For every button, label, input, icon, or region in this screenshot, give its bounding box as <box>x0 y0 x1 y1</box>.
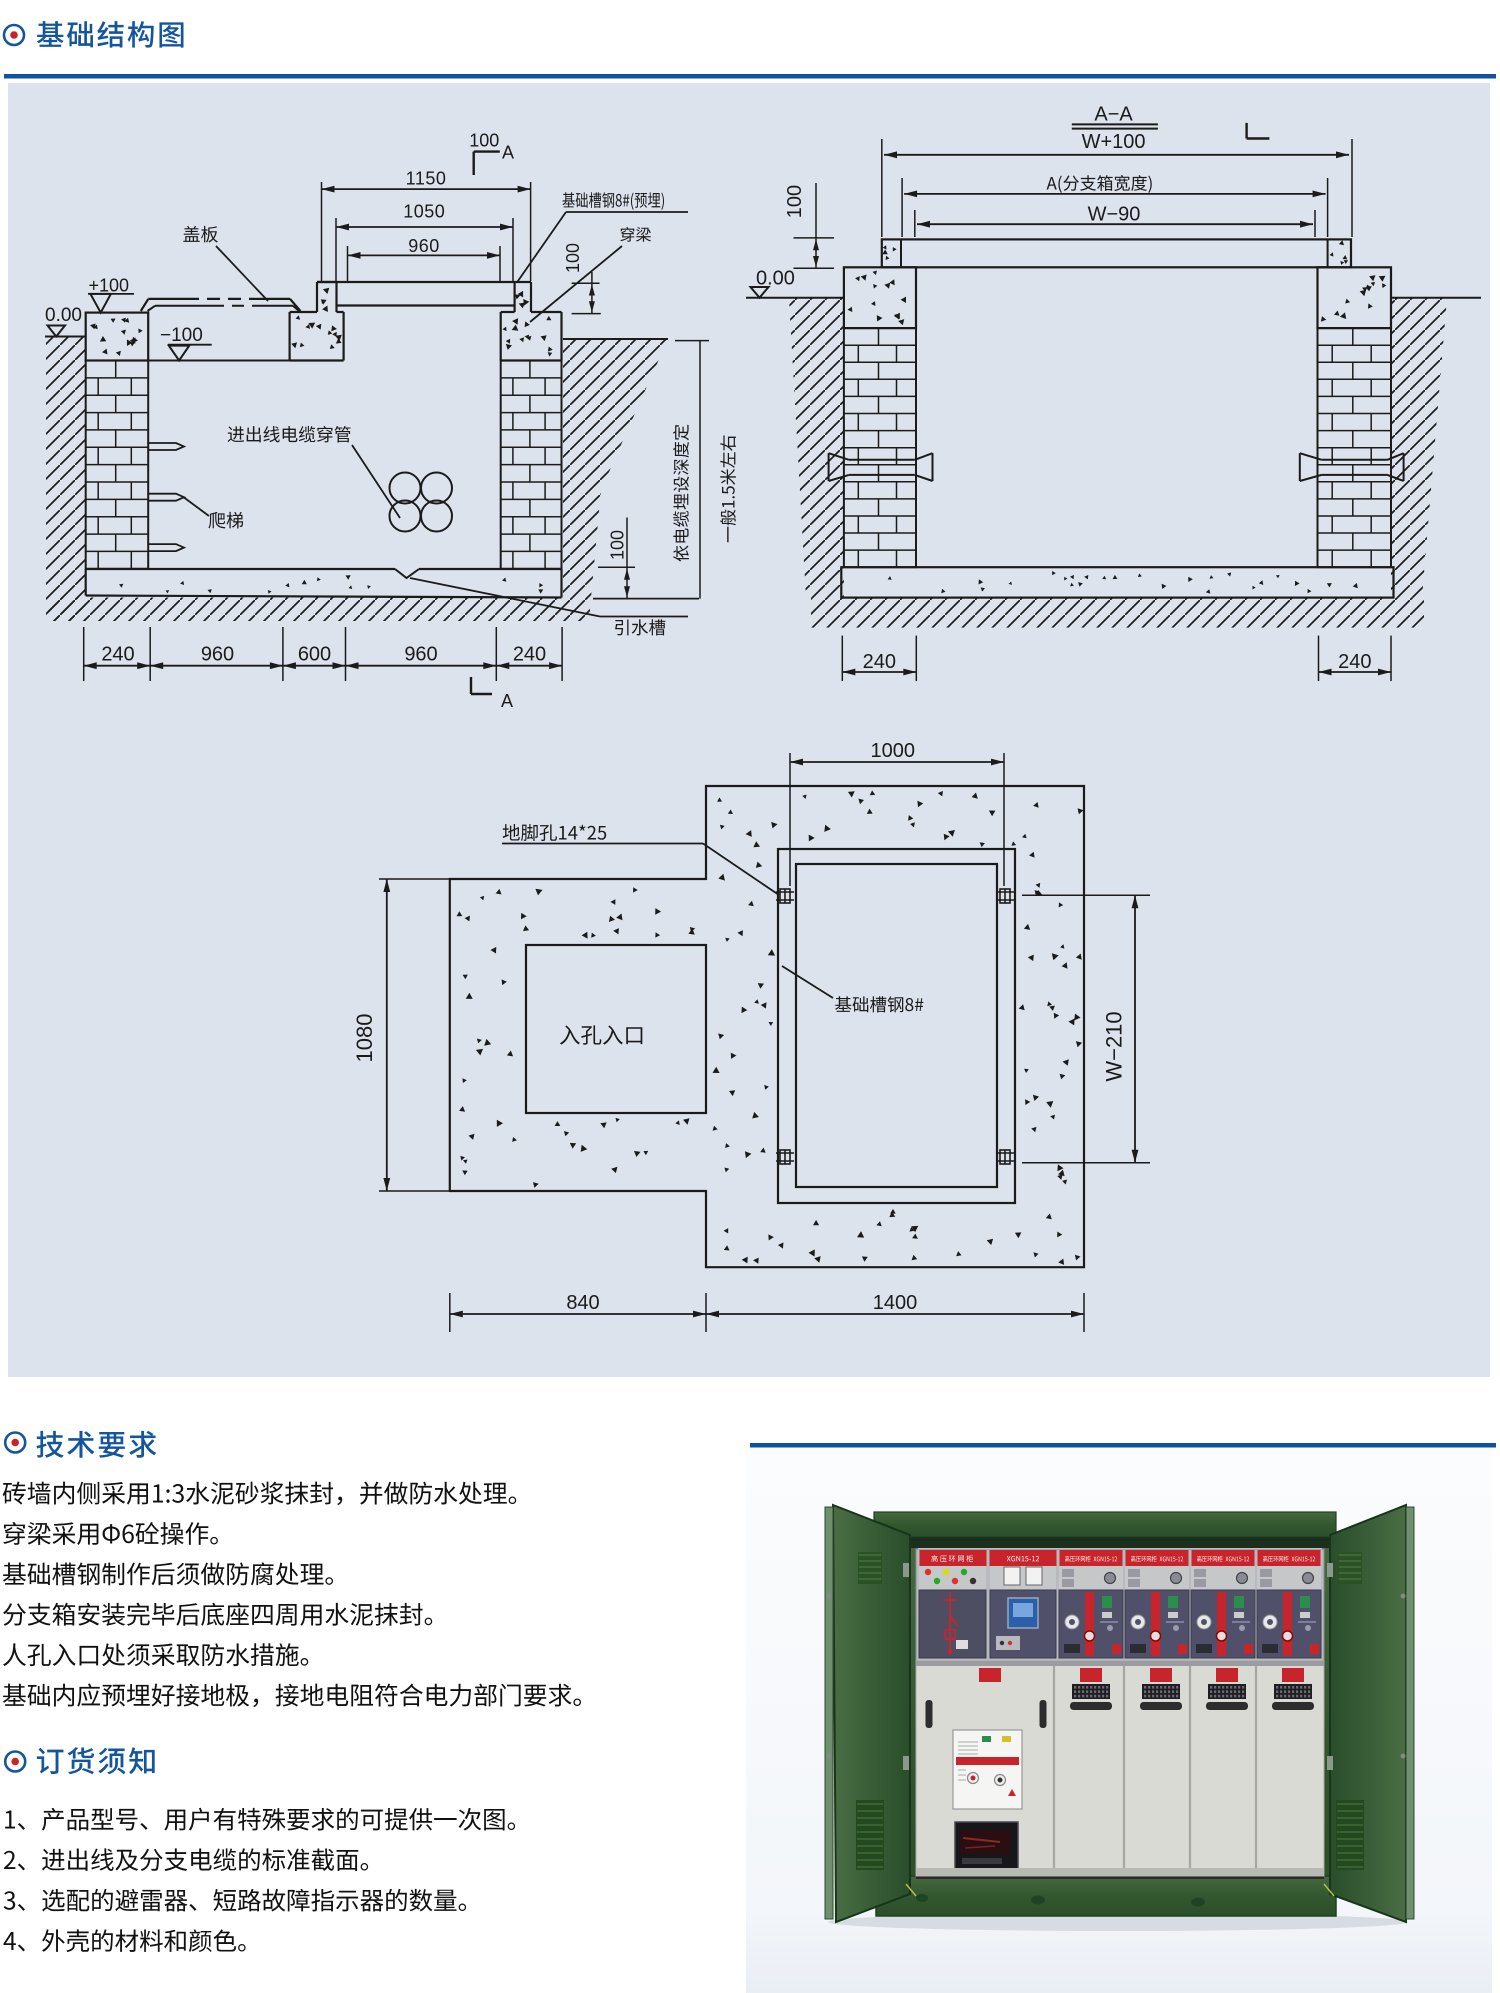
svg-text:960: 960 <box>404 643 437 665</box>
svg-text:100: 100 <box>563 243 583 273</box>
svg-text:W−210: W−210 <box>1102 1011 1127 1081</box>
svg-text:−100: −100 <box>160 325 203 346</box>
svg-text:1050: 1050 <box>403 202 445 222</box>
svg-text:240: 240 <box>1338 651 1371 673</box>
svg-text:1000: 1000 <box>871 740 916 762</box>
svg-text:1150: 1150 <box>406 169 447 189</box>
svg-text:240: 240 <box>863 651 896 673</box>
svg-text:100: 100 <box>784 185 806 218</box>
svg-text:A: A <box>502 143 514 163</box>
svg-text:0.00: 0.00 <box>45 305 82 326</box>
svg-text:W−90: W−90 <box>1088 204 1141 226</box>
svg-text:100: 100 <box>608 530 628 560</box>
svg-text:240: 240 <box>101 643 134 665</box>
svg-text:600: 600 <box>298 643 331 665</box>
svg-text:W+100: W+100 <box>1082 131 1146 153</box>
svg-text:240: 240 <box>513 643 546 665</box>
svg-text:+100: +100 <box>89 276 130 296</box>
svg-text:A−A: A−A <box>1094 103 1133 125</box>
svg-text:1400: 1400 <box>873 1292 918 1314</box>
svg-text:1080: 1080 <box>352 1014 377 1063</box>
svg-text:960: 960 <box>408 236 440 256</box>
svg-text:A: A <box>501 691 513 711</box>
svg-text:100: 100 <box>469 130 499 150</box>
svg-text:960: 960 <box>201 643 234 665</box>
svg-text:840: 840 <box>566 1292 599 1314</box>
